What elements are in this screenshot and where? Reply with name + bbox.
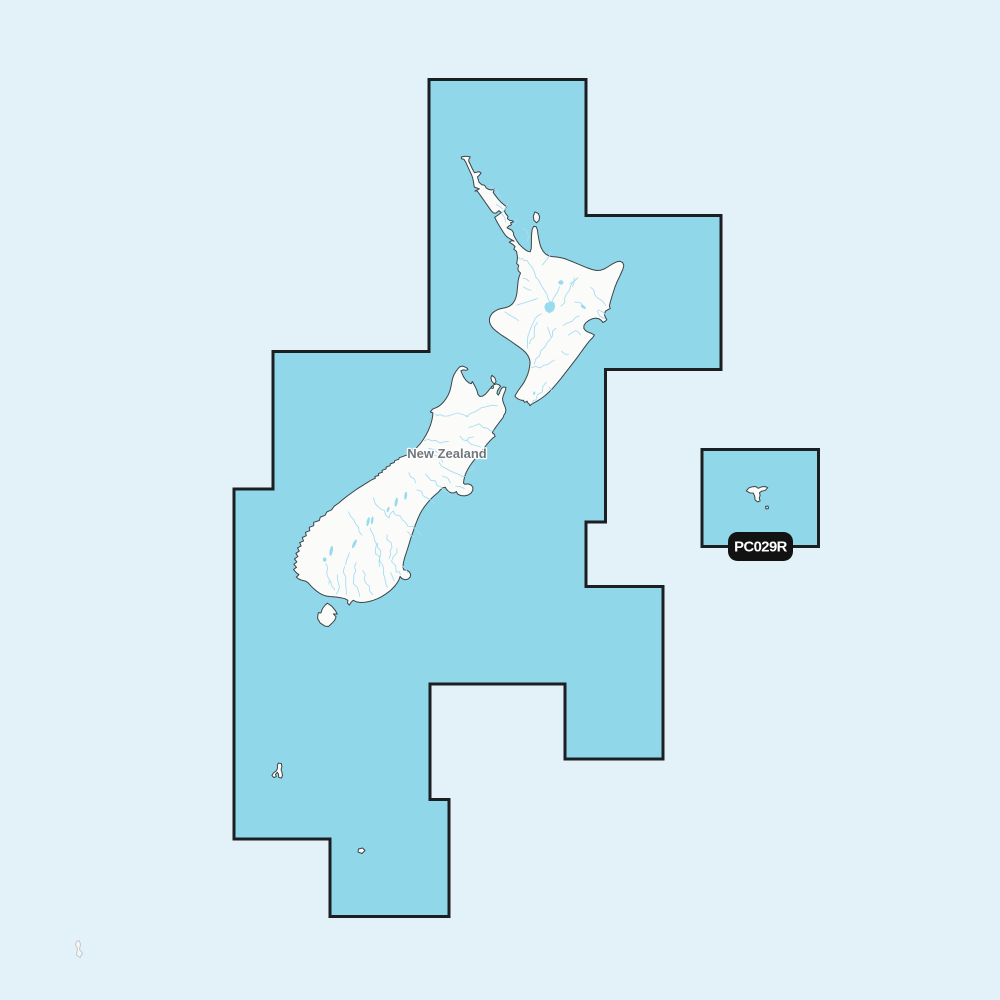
svg-text:New Zealand: New Zealand bbox=[407, 446, 487, 461]
svg-text:PC029R: PC029R bbox=[734, 540, 787, 556]
